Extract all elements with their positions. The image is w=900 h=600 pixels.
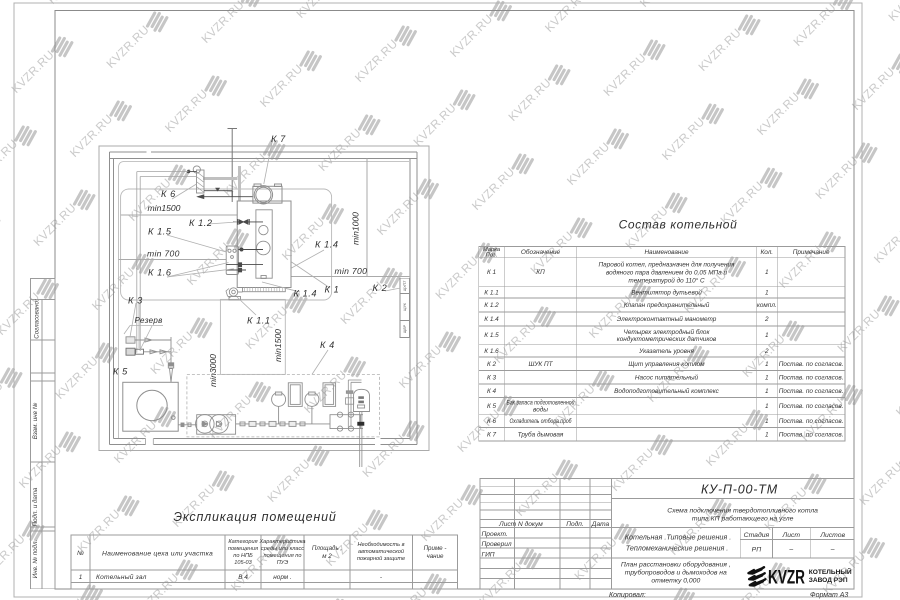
svg-text:min1000: min1000 [351,212,361,245]
svg-text:Охладитель отбора проб: Охладитель отбора проб [510,417,572,425]
svg-text:Обозначение: Обозначение [521,248,561,256]
svg-text:KVZR.RU: KVZR.RU [352,36,401,85]
svg-text:KVZR.RU: KVZR.RU [396,342,445,391]
svg-text:KVZR.RU: KVZR.RU [600,50,649,99]
svg-text:К 5: К 5 [113,367,128,377]
svg-text:KVZR.RU: KVZR.RU [542,0,591,35]
svg-text:К 5: К 5 [487,403,497,410]
svg-text:К 2: К 2 [373,283,388,293]
svg-text:Котельный зал: Котельный зал [96,573,147,581]
svg-text:KVZR.RU: KVZR.RU [447,11,496,60]
svg-text:1: 1 [765,388,769,395]
svg-text:KVZR.RU: KVZR.RU [739,331,788,380]
svg-text:К 4: К 4 [487,388,497,395]
svg-text:Насос питательный: Насос питательный [635,373,699,381]
svg-text:KVZR.RU: KVZR.RU [220,150,269,199]
svg-text:105-03: 105-03 [234,560,252,566]
svg-text:Копировал:: Копировал: [609,592,646,599]
svg-text:№: № [77,550,84,557]
svg-text:KVZR.RU: KVZR.RU [564,139,613,188]
svg-text:1: 1 [765,361,769,368]
svg-text:KVZR.RU: KVZR.RU [571,534,620,583]
svg-text:1: 1 [765,432,769,439]
svg-text:KVZR.RU: KVZR.RU [834,306,883,355]
svg-text:Резерв: Резерв [135,316,163,325]
svg-text:К 2: К 2 [487,361,497,368]
svg-text:KVZR.RU: KVZR.RU [418,495,467,544]
svg-text:К 7: К 7 [487,432,497,439]
svg-text:Площадь ,: Площадь , [312,545,342,552]
svg-text:1: 1 [765,332,769,339]
svg-text:min1500: min1500 [148,203,181,213]
svg-text:KVZR.RU: KVZR.RU [856,459,900,508]
svg-text:KVZR.RU: KVZR.RU [264,456,313,505]
svg-text:KVZR.RU: KVZR.RU [608,445,657,494]
svg-text:KVZR.RU: KVZR.RU [38,595,87,600]
svg-text:Экспликация помещений: Экспликация помещений [173,510,336,524]
svg-text:ЗАВОД РЭП: ЗАВОД РЭП [809,577,848,584]
svg-text:КУ-П-00-ТМ: КУ-П-00-ТМ [701,483,778,497]
svg-text:ЩУПТ: ЩУПТ [403,280,407,291]
svg-text:KVZR.RU: KVZR.RU [476,559,525,600]
svg-text:KVZR.RU: KVZR.RU [242,303,291,352]
svg-text:Подп.: Подп. [566,520,584,528]
svg-text:KVZR.RU: KVZR.RU [637,0,686,10]
svg-text:KVZR.RU: KVZR.RU [754,89,803,138]
svg-text:1: 1 [765,269,769,276]
svg-text:автоматической: автоматической [358,548,404,555]
svg-text:К 1.4: К 1.4 [315,240,339,250]
svg-text:-: - [380,574,382,581]
svg-text:трубопроводов и дымоходов н: трубопроводов и дымоходов на [625,569,727,577]
svg-text:KVZR.RU: KVZR.RU [257,61,306,110]
svg-text:KVZR.RU: KVZR.RU [432,253,481,302]
svg-text:KVZR: KVZR [768,567,805,589]
svg-text:Постав. по согласов.: Постав. по согласов. [779,403,844,410]
svg-text:Подп. и дата: Подп. и дата [32,487,39,526]
svg-text:Постав. по согласов.: Постав. по согласов. [779,388,844,395]
svg-text:KVZR.RU: KVZR.RU [491,317,540,366]
svg-text:К 1.6: К 1.6 [148,268,172,278]
svg-text:кондуктометрических датчиков: кондуктометрических датчиков [617,335,717,343]
svg-text:К 1.5: К 1.5 [148,227,172,237]
svg-text:KVZR.RU: KVZR.RU [0,136,20,185]
svg-text:KVZR.RU: KVZR.RU [410,100,459,149]
svg-text:К 1.6: К 1.6 [484,348,499,355]
svg-text:Постав. по согласов.: Постав. по согласов. [779,374,844,381]
svg-text:min 700: min 700 [147,249,180,259]
svg-text:ГИП: ГИП [482,551,495,558]
svg-text:KVZR.RU: KVZR.RU [16,442,65,491]
svg-text:К 1.5: К 1.5 [484,332,499,339]
svg-text:Взам. инв №: Взам. инв № [32,402,39,439]
svg-text:Водоподготовительный комплекс: Водоподготовительный комплекс [614,387,720,395]
svg-text:воды: воды [533,406,548,414]
svg-text:Проверил: Проверил [482,541,512,548]
svg-text:К 1.1: К 1.1 [484,290,499,297]
svg-text:КП: КП [536,269,545,276]
svg-text:Кол.: Кол. [761,249,774,256]
svg-text:Постав. по согласов.: Постав. по согласов. [779,361,844,368]
svg-text:KVZR.RU: KVZR.RU [374,189,423,238]
svg-text:1: 1 [765,374,769,381]
svg-text:Наименование цеха или участка: Наименование цеха или участка [102,551,213,558]
svg-text:помещения по: помещения по [264,553,302,559]
svg-text:пожарной защите: пожарной защите [357,555,405,562]
svg-text:KVZR.RU: KVZR.RU [659,114,708,163]
svg-text:1: 1 [765,403,769,410]
svg-text:Состав котельной: Состав котельной [619,218,738,232]
svg-text:Категория: Категория [228,539,257,545]
svg-text:–: – [788,547,793,554]
svg-text:К 3: К 3 [487,374,497,381]
svg-text:К 1: К 1 [325,285,340,295]
svg-text:Труба дымовая: Труба дымовая [518,431,564,439]
svg-text:KVZR.RU: KVZR.RU [695,25,744,74]
svg-text:температурой до 110° С: температурой до 110° С [628,277,705,285]
svg-text:Схема подключения твердотопл: Схема подключения твердотопливного котла [667,507,818,515]
svg-text:min 700: min 700 [335,266,368,276]
svg-text:Постав. по согласов.: Постав. по согласов. [779,418,844,425]
svg-text:KVZR.RU: KVZR.RU [893,370,900,419]
svg-text:м 2: м 2 [322,553,332,560]
svg-text:1: 1 [79,574,83,581]
svg-text:KVZR.RU: KVZR.RU [52,353,101,402]
svg-text:Поз.: Поз. [486,253,498,259]
svg-text:KVZR.RU: KVZR.RU [125,175,174,224]
svg-text:компл.: компл. [757,302,777,309]
svg-text:среды или класс: среды или класс [261,546,304,552]
svg-text:1: 1 [765,418,769,425]
svg-text:Проект.: Проект. [482,531,508,538]
svg-text:KVZR.RU: KVZR.RU [8,47,57,96]
svg-text:Постав. по согласов.: Постав. по согласов. [779,432,844,439]
svg-text:KVZR.RU: KVZR.RU [74,506,123,555]
svg-text:ПУЭ: ПУЭ [277,560,289,566]
svg-text:min3000: min3000 [208,354,218,387]
svg-text:2: 2 [764,316,769,323]
svg-text:Бак запаса подготовленной: Бак запаса подготовленной [507,399,575,407]
svg-text:чание: чание [427,553,444,560]
svg-text:Примечание: Примечание [793,249,830,256]
svg-text:KVZR.RU: KVZR.RU [0,378,6,427]
svg-text:Паровой котел, предназначен дл: Паровой котел, предназначен для получени… [599,261,735,269]
svg-text:KVZR.RU: KVZR.RU [67,111,116,160]
svg-text:Формат А3: Формат А3 [810,592,848,599]
svg-text:KVZR.RU: KVZR.RU [162,86,211,135]
svg-text:Котельная .Типовые решения .: Котельная .Типовые решения . [625,533,731,542]
svg-text:отметку 0,000: отметку 0,000 [651,578,700,585]
svg-text:Стадия: Стадия [744,531,770,539]
svg-text:норм .: норм . [273,574,292,581]
svg-text:Инв. № подл.: Инв. № подл. [32,540,39,578]
svg-text:План расстановки оборудовани: План расстановки оборудования , [621,561,731,569]
svg-text:Клапан предохранительный: Клапан предохранительный [624,301,710,309]
svg-text:К 1.2: К 1.2 [484,302,499,309]
svg-text:Электроконтактный манометр: Электроконтактный манометр [617,315,717,323]
svg-text:В 4: В 4 [238,574,248,581]
svg-text:К 1.4: К 1.4 [484,316,499,323]
svg-text:К 1: К 1 [487,269,497,276]
svg-text:Необходимость в: Необходимость в [357,542,404,548]
svg-text:Лист: Лист [782,532,801,539]
svg-text:–: – [830,547,835,554]
svg-text:водяного пара давлением до 0,: водяного пара давлением до 0,05 МПа и [606,269,728,277]
svg-text:KVZR.RU: KVZR.RU [103,22,152,71]
svg-text:KVZR.RU: KVZR.RU [381,584,430,600]
svg-text:Щит управления котлом: Щит управления котлом [628,361,705,368]
svg-text:KVZR.RU: KVZR.RU [198,0,247,46]
svg-text:KVZR.RU: KVZR.RU [469,164,518,213]
svg-text:типа КП работающего на угл: типа КП работающего на угле [692,515,794,523]
svg-text:KVZR.RU: KVZR.RU [871,217,900,266]
svg-text:ШУК ПТ: ШУК ПТ [528,361,553,368]
svg-text:2: 2 [764,348,769,355]
svg-text:KVZR.RU: KVZR.RU [885,0,900,24]
svg-text:Наименование: Наименование [644,249,689,256]
svg-text:К 4: К 4 [320,340,335,350]
svg-text:К 1.4: К 1.4 [294,289,318,299]
svg-text:КОТЕЛЬНЫЙ: КОТЕЛЬНЫЙ [809,567,852,576]
svg-text:Четырех электродный блок: Четырех электродный блок [624,328,711,336]
svg-text:помещения: помещения [228,546,258,552]
svg-text:К 1.2: К 1.2 [189,218,213,228]
svg-text:ЩВР: ЩВР [403,324,407,333]
svg-text:KVZR.RU: KVZR.RU [790,0,839,49]
svg-text:KVZR.RU: KVZR.RU [849,64,898,113]
svg-text:min1500: min1500 [273,329,283,362]
svg-text:Листов: Листов [819,532,845,539]
svg-text:Характеристика: Характеристика [258,539,305,545]
svg-text:KVZR.RU: KVZR.RU [505,75,554,124]
svg-text:Согласовано:: Согласовано: [34,299,41,339]
svg-text:К 1.1: К 1.1 [247,316,271,326]
svg-text:Дата: Дата [591,521,610,528]
svg-text:1: 1 [765,290,769,297]
svg-text:Лист N докум: Лист N докум [498,520,543,528]
svg-text:К 7: К 7 [271,134,286,144]
svg-text:К 6: К 6 [161,189,176,199]
svg-text:Указатель уровня: Указатель уровня [638,348,694,355]
svg-text:ЩУК: ЩУК [403,302,407,311]
svg-text:Тепломеханические решения .: Тепломеханические решения . [626,544,729,553]
svg-text:KVZR.RU: KVZR.RU [315,125,364,174]
svg-text:KVZR.RU: KVZR.RU [725,573,774,600]
svg-text:РП: РП [752,547,762,554]
svg-text:К 3: К 3 [128,296,143,306]
svg-text:Вентилятор дутьевой: Вентилятор дутьевой [631,289,702,297]
svg-text:К 6: К 6 [487,418,497,425]
svg-text:по НПБ: по НПБ [233,553,253,559]
svg-text:Приме -: Приме - [424,545,447,552]
